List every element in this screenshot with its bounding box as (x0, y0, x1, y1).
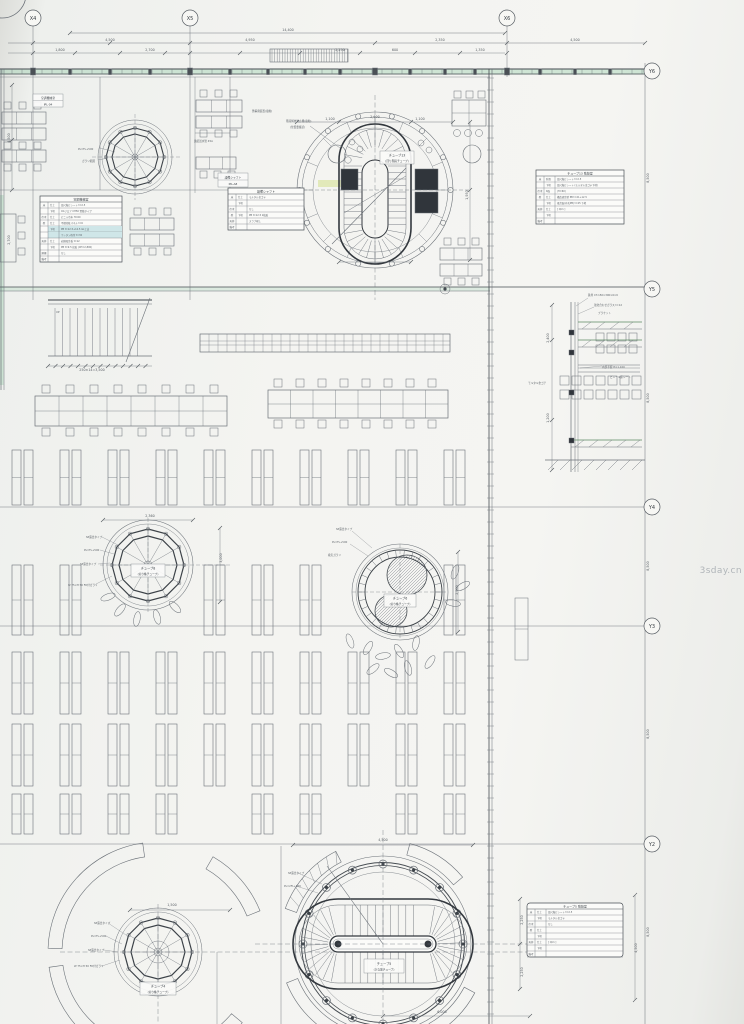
annotation-label: UP (56, 310, 60, 314)
tube-subname: (切り株チューブ) (138, 572, 159, 576)
finish-table-cell: [ Qim ] (548, 941, 556, 944)
dimension-label: 2,700 (145, 48, 154, 52)
annotation-label: PL=FL+500 (84, 548, 100, 552)
grid-bubble-y6: Y6 (644, 63, 660, 79)
annotation-label: ガラリ範囲 (82, 159, 95, 163)
finish-table-cell: 仕上 (238, 195, 243, 199)
finish-table-cell: 仕上 (537, 940, 542, 944)
room-title: 設備シャフト (225, 176, 242, 180)
annotation-label: ブラケット (598, 311, 611, 315)
tube5-label: チューブ5 (ひな壇チューブ) (364, 959, 404, 973)
finish-table-cell: 下地 (50, 209, 55, 213)
finish-table-cell: PB t=9.5 捨貼 (CH=2,800) (61, 245, 92, 249)
finish-table-cell: 廻縁 (41, 251, 47, 255)
finish-table-cell: 仕上 (50, 215, 55, 219)
finish-table-cell: 備考 (229, 225, 235, 229)
dimension-label: 6,000 (437, 1010, 446, 1014)
dimension-label: 1,950 (465, 190, 469, 199)
annotation-label: 吸気ガラリ (328, 553, 341, 557)
finish-table-cell: 仕上 (537, 910, 542, 914)
drawing-geometry (0, 0, 652, 1024)
annotation-label: (位置要確認) (290, 125, 305, 129)
room-code: IPL-A8 (229, 182, 238, 186)
annotation-label: 内部手摺 H=1,100 (602, 365, 625, 369)
annotation-label: SP露出タイプ (86, 535, 103, 539)
finish-table-cell: 下地 (50, 227, 55, 231)
dimension-label: 2,250 (520, 915, 524, 924)
dimension-label: 8,500 (646, 173, 650, 182)
finish-table-cell: 構造遮音壁 PB t=21+12.5 (557, 195, 587, 199)
dimension-label: 4,500 (105, 38, 114, 42)
tube-subname: (ひな壇チューブ) (374, 968, 395, 972)
dimension-label: 1,200 (546, 413, 550, 422)
dimension-label: 1,500 (167, 903, 176, 907)
tube-name: チューブ5 (377, 961, 392, 966)
finish-table-cell: なし (61, 251, 66, 255)
tube-subname: (回り階段チューブ) (385, 159, 408, 163)
finish-table-cell: 岩綿吸音板 t=12 (61, 239, 80, 243)
grid-bubble-y5: Y5 (644, 281, 660, 297)
finish-table-cell: 下地 (537, 946, 542, 950)
finish-table-cell: ウレタン吹付 t=30 (61, 233, 83, 237)
tube-name: チューブ4 (151, 984, 166, 989)
dimension-label: 1,100 (325, 117, 334, 121)
finish-table-cell: 下地 (537, 934, 542, 938)
grid-bubble-x6: X6 (499, 10, 515, 26)
annotation-label: SP露出タイプ (94, 921, 111, 925)
annotation-label: モルタル金ゴテ (528, 381, 547, 385)
finish-table-cell: 巾木 (229, 207, 235, 211)
finish-table-cell: モルタル金ゴテ (249, 195, 266, 199)
finish-table-cell: 不燃化粧パネル t=6 (61, 221, 83, 225)
tube-name: チューブ8 (141, 566, 156, 571)
annotation-label: 連結送水管 45A (194, 139, 213, 143)
finish-table-cell: 仕上 (537, 928, 542, 932)
finish-table-title: チューブ5 階段室 (563, 903, 587, 908)
dimension-label: 2,250 (520, 967, 524, 976)
tube-subname: (切り株チューブ) (390, 602, 411, 606)
annotation-label: 鉄骨 CT-150×300×6×9 (588, 293, 618, 297)
grid-label-y4: Y4 (648, 505, 655, 511)
finish-table-cell: 長尺塩ビシート t=2.5 (548, 910, 573, 914)
dimension-label: 4,500 (570, 38, 579, 42)
tube6-label: チューブ6 (切り株チューブ) (384, 594, 416, 607)
finish-table-cell: 備考 (41, 257, 47, 261)
finish-table-cell: 吸音面(有孔PB) t=25 下地 (557, 201, 587, 205)
grid-bubble-y3: Y3 (644, 618, 660, 634)
annotation-label: ビニール床シート (610, 375, 631, 379)
dimension-label: 4,950 (245, 38, 254, 42)
finish-table-cell: 仕上 (50, 221, 55, 225)
finish-table-cell: [ Qim ] (557, 208, 565, 211)
grid-bubble-x5: X5 (182, 10, 198, 26)
dimension-label: 1,800 (55, 48, 64, 52)
finish-table-cell: 仕上 (546, 195, 551, 199)
dimension-label: 2,700 (7, 235, 11, 244)
finish-table-cell: 下地 (537, 916, 542, 920)
finish-table-cell: 巾木 (528, 922, 534, 926)
grid-bubble-y2: Y2 (644, 836, 660, 852)
finish-table-cell: 下地 (546, 201, 551, 205)
annotation-label: SP露出タイプ (288, 871, 305, 875)
dimension-label: 14,400 (282, 28, 294, 32)
dimension-label: 2,350 (435, 38, 444, 42)
finish-table-cell: 長尺塩ビシート t=2.5 (557, 177, 582, 181)
annotation-label: 階段解放防止柵(電動) (286, 119, 311, 123)
finish-table-cell: (H=60) (557, 190, 566, 193)
finish-table-cell: 長尺塩ビシート (モルタル金ゴテ下地) (557, 183, 598, 187)
dimension-label: 2,600 (370, 115, 379, 119)
annotation-label: PL=FL+500 (332, 540, 348, 544)
grid-label-y5: Y5 (648, 287, 655, 293)
finish-table-cell: 下地 (546, 213, 551, 217)
annotation-label: PL=FL+500 (91, 934, 107, 938)
dimension-label: 8,500 (646, 393, 650, 402)
finish-table-cell: スラブ現し (249, 219, 262, 223)
dimension-label: 600 (392, 48, 398, 52)
dimension-label: 8,500 (646, 561, 650, 570)
finish-table-cell: 巾木 (41, 215, 47, 219)
grid-label-x5: X5 (187, 16, 194, 22)
finish-table-cell: 下地 (546, 183, 551, 187)
finish-table-cell: なし (548, 922, 553, 926)
tube8-label: チューブ8 (切り株チューブ) (131, 564, 165, 577)
dimension-label: 2,400 (546, 333, 550, 342)
finish-table-cell: 下地 (50, 245, 55, 249)
finish-table-cell: 天井 (528, 940, 534, 944)
finish-table-cell: なし (249, 207, 254, 211)
finish-table-cell: 下地 (238, 213, 243, 217)
finish-table-cell: R面 (546, 189, 551, 193)
finish-table-cell: 備考 (528, 952, 534, 956)
room-code: IPL-04 (44, 103, 53, 107)
dimension-label: 8,500 (646, 729, 650, 738)
finish-table-cell: OAフロア CH50 置敷タイプ (61, 209, 92, 213)
finish-table-cell: 下地 (238, 201, 243, 205)
finish-table-cell: ビニル巾木 H=60 (61, 215, 81, 219)
annotation-label: W 75×H 50 FD付ガラリ (74, 964, 104, 968)
finish-table-title: 空調機械室 (73, 196, 88, 201)
finish-table-cell: 天井 (537, 207, 543, 211)
tube-name: チューブ13 (389, 153, 406, 158)
finish-table-title: 設備シャフト (257, 188, 275, 193)
tube-subname: (切り株チューブ) (148, 990, 169, 994)
drawing-sheet: 空調機械室床仕上長尺塩ビシート t=2.5下地OAフロア CH50 置敷タイプ巾… (0, 0, 744, 1024)
grid-label-y2: Y2 (648, 842, 655, 848)
room-title: 空調機械室 (41, 96, 55, 100)
annotation-label: SP露出タイプ (336, 527, 353, 531)
finish-table-cell: 天井 (41, 239, 47, 243)
finish-table-cell: PB t=12.5+12.5 GL工法 (61, 227, 90, 231)
finish-table-cell: 仕上 (50, 203, 55, 207)
grid-bubble-y4: Y4 (644, 499, 660, 515)
dimension-label: 4,500 (378, 838, 387, 842)
dimension-label: 4,500 (7, 133, 11, 142)
floor-plan-drawing: 空調機械室床仕上長尺塩ビシート t=2.5下地OAフロア CH50 置敷タイプ巾… (0, 0, 744, 1024)
dimension-label: 2,900 (455, 585, 459, 594)
finish-table-cell: 備考 (537, 219, 543, 223)
grid-label-x6: X6 (504, 16, 511, 22)
finish-table-cell: 防滑 (546, 177, 551, 181)
annotation-label: PL=FL+500 (78, 147, 94, 151)
watermark: 3sday.cn (700, 566, 742, 576)
finish-table-cell: 天井 (229, 219, 235, 223)
dimension-label: 1,350 (475, 48, 484, 52)
grid-label-x4: X4 (30, 16, 37, 22)
dimension-label: 3,000 (219, 553, 223, 562)
grid-bubble-x4: X4 (25, 10, 41, 26)
tube13-label: チューブ13 (回り階段チューブ) (380, 151, 414, 164)
finish-table-cell: 仕上 (546, 207, 551, 211)
annotation-label: 懸垂幕装置(電動) (252, 109, 272, 113)
finish-table-cell: 仕上 (50, 239, 55, 243)
dimension-label: 1,100 (415, 117, 424, 121)
finish-table-cell: PB t=12.5 2枚貼 (249, 213, 269, 217)
grid-label-y3: Y3 (648, 624, 655, 630)
annotation-label: SP露出タイプ (80, 562, 97, 566)
dimension-label: 2,250 (335, 48, 344, 52)
tube-name: チューブ6 (393, 596, 408, 601)
room-label-shaft: 設備シャフト IPL-A8 (218, 173, 248, 187)
dimension-label: 250×14=3,500 (79, 368, 104, 372)
dimension-label: 4,500 (634, 943, 638, 952)
finish-table-cell: モルタル金ゴテ (548, 916, 565, 920)
grid-label-y6: Y6 (648, 69, 655, 75)
finish-table-cell: 長尺塩ビシート t=2.5 (61, 203, 86, 207)
room-label-ac-machine: 空調機械室 IPL-04 (33, 94, 63, 107)
tube4-label: チューブ4 (切り株チューブ) (140, 982, 176, 995)
annotation-label: SP露出タイプ (88, 948, 105, 952)
finish-table-cell: 巾木 (537, 189, 543, 193)
dimension-label: 8,500 (646, 927, 650, 936)
annotation-label: W 75×H 50 FD付ガラリ (68, 583, 98, 587)
annotation-label: PL=2FL+500 (284, 884, 301, 888)
dimension-label: 2,360 (145, 514, 154, 518)
finish-table-title: チューブ13 階段室 (567, 170, 593, 175)
annotation-label: 強化合わせガラス t=12 (594, 303, 622, 307)
